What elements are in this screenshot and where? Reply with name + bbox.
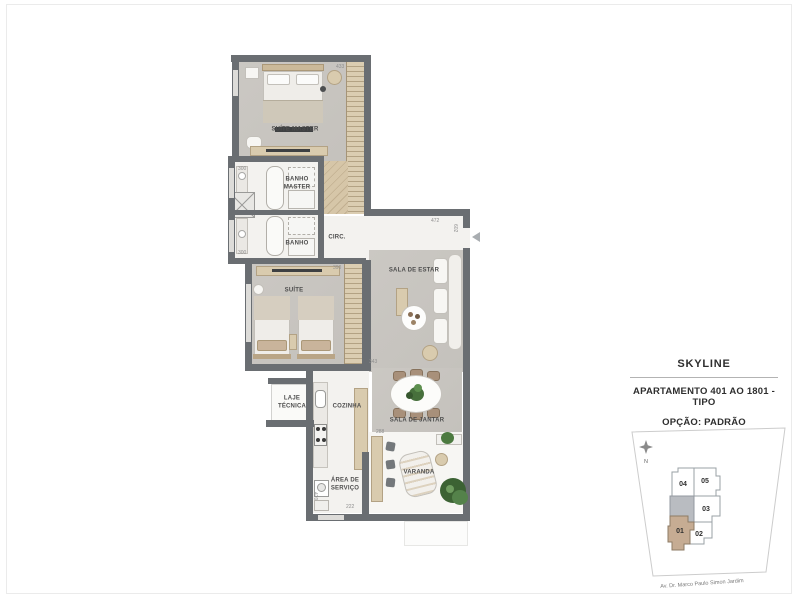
terrace-slab xyxy=(404,521,468,546)
pillow xyxy=(301,340,331,351)
bed-blanket xyxy=(298,296,334,320)
compass-n-label: N xyxy=(644,459,648,465)
title-block: SKYLINE APARTAMENTO 401 AO 1801 - TIPO O… xyxy=(628,358,780,428)
wardrobe-bar xyxy=(272,269,322,272)
window xyxy=(229,220,234,252)
unit-number-03: 03 xyxy=(702,506,710,513)
side-table xyxy=(435,453,448,466)
bar-stool xyxy=(386,478,396,488)
dimension-label: 420 xyxy=(312,492,317,500)
bed-headboard xyxy=(262,64,324,71)
bathtub xyxy=(266,216,284,256)
window xyxy=(318,515,344,520)
project-title: SKYLINE xyxy=(628,358,780,370)
dimension-label: 343 xyxy=(369,360,377,365)
sofa-seat xyxy=(433,288,448,314)
room-label-varanda: VARANDA xyxy=(389,469,449,477)
table-decor xyxy=(411,320,416,325)
entry-door-gap xyxy=(461,228,470,248)
dimension-label: 300 xyxy=(238,251,246,256)
room-label-sala-de-jantar: SALA DE JANTAR xyxy=(370,417,464,425)
pillow xyxy=(296,74,319,85)
room-label-suite-master: SUÍTE MASTER xyxy=(255,126,335,134)
side-table xyxy=(327,70,342,85)
wall-segment xyxy=(364,209,470,216)
bedside-ladder xyxy=(289,334,297,350)
room-label-sala-de-estar: SALA DE ESTAR xyxy=(369,267,459,275)
coffee-table xyxy=(401,305,427,331)
wall-segment xyxy=(463,216,470,228)
room-label-banho-master: BANHO MASTER xyxy=(276,177,318,192)
pouf xyxy=(253,284,264,295)
sink xyxy=(238,172,246,180)
wood-floor-closet xyxy=(322,161,348,214)
unit-number-05: 05 xyxy=(701,478,709,485)
wall-segment xyxy=(266,420,314,427)
wall-segment xyxy=(245,364,371,371)
room-label-banho: BANHO xyxy=(272,240,322,248)
plant-centerpiece xyxy=(414,384,422,392)
pouf xyxy=(422,345,438,361)
dimension-label: 602 xyxy=(452,224,457,232)
bar-stool xyxy=(385,459,395,469)
street-label: Av. Dr. Marco Paulo Simon Jardim xyxy=(660,578,744,590)
room-label-cozinha: COZINHA xyxy=(322,403,372,411)
wall-segment xyxy=(318,156,324,264)
wall-segment xyxy=(362,260,371,371)
entrance-arrow-icon xyxy=(472,232,480,242)
dimension-label: 390 xyxy=(333,266,341,271)
dimension-label: 288 xyxy=(376,430,384,435)
floor-lamp xyxy=(320,86,326,92)
table-decor xyxy=(415,314,420,319)
burner xyxy=(316,427,320,431)
wall-segment xyxy=(232,156,324,162)
bed-headboard xyxy=(297,354,335,359)
sofa-seat xyxy=(433,318,448,344)
wall-segment xyxy=(268,378,312,384)
burner xyxy=(316,438,320,442)
room-label-area-de-servico: ÁREA DE SERVIÇO xyxy=(325,478,365,493)
dimension-label: 222 xyxy=(346,505,354,510)
table-decor xyxy=(408,312,413,317)
burner xyxy=(322,427,326,431)
toilet xyxy=(288,190,315,209)
deck-suite-master xyxy=(346,62,365,214)
tv-bar xyxy=(266,149,310,152)
plant xyxy=(441,432,454,444)
wall-segment xyxy=(463,248,470,521)
dimension-label: 300 xyxy=(238,167,246,172)
title-divider xyxy=(630,377,778,378)
unit-number-02: 02 xyxy=(695,531,703,538)
deck-suite xyxy=(344,264,363,366)
shower-box xyxy=(288,217,315,235)
key-plan: N 04 05 03 02 01 Av. Dr. Marco Paulo Sim… xyxy=(620,426,795,596)
sink xyxy=(238,230,246,238)
room-label-suite: SUÍTE xyxy=(269,287,319,295)
window xyxy=(246,284,251,342)
apartment-title: APARTAMENTO 401 AO 1801 - TIPO xyxy=(628,386,780,408)
dimension-label: 433 xyxy=(336,65,344,70)
wall-segment xyxy=(364,55,371,216)
laundry-tank xyxy=(314,500,329,511)
pillow xyxy=(267,74,290,85)
unit-number-04: 04 xyxy=(679,481,687,488)
plant-centerpiece xyxy=(406,392,413,399)
wall-segment xyxy=(228,258,366,264)
room-label-laje-tecnica: LAJE TÉCNICA xyxy=(275,396,309,411)
plant xyxy=(452,490,468,505)
unit-number-01: 01 xyxy=(676,528,684,535)
bar-counter xyxy=(371,436,383,502)
bed-headboard xyxy=(253,354,291,359)
wall-segment xyxy=(232,210,324,215)
window xyxy=(229,168,234,198)
wall-segment xyxy=(231,55,371,62)
nightstand xyxy=(245,67,259,79)
pillow xyxy=(257,340,287,351)
window xyxy=(233,70,238,96)
stove xyxy=(314,424,327,446)
room-label-circ: CIRC. xyxy=(317,234,357,242)
plant xyxy=(446,485,454,493)
bed-blanket xyxy=(263,100,323,123)
compass-icon: N xyxy=(639,440,653,465)
bar-stool xyxy=(385,441,395,451)
bed-blanket xyxy=(254,296,290,320)
dimension-label: 472 xyxy=(431,219,439,224)
burner xyxy=(322,438,326,442)
